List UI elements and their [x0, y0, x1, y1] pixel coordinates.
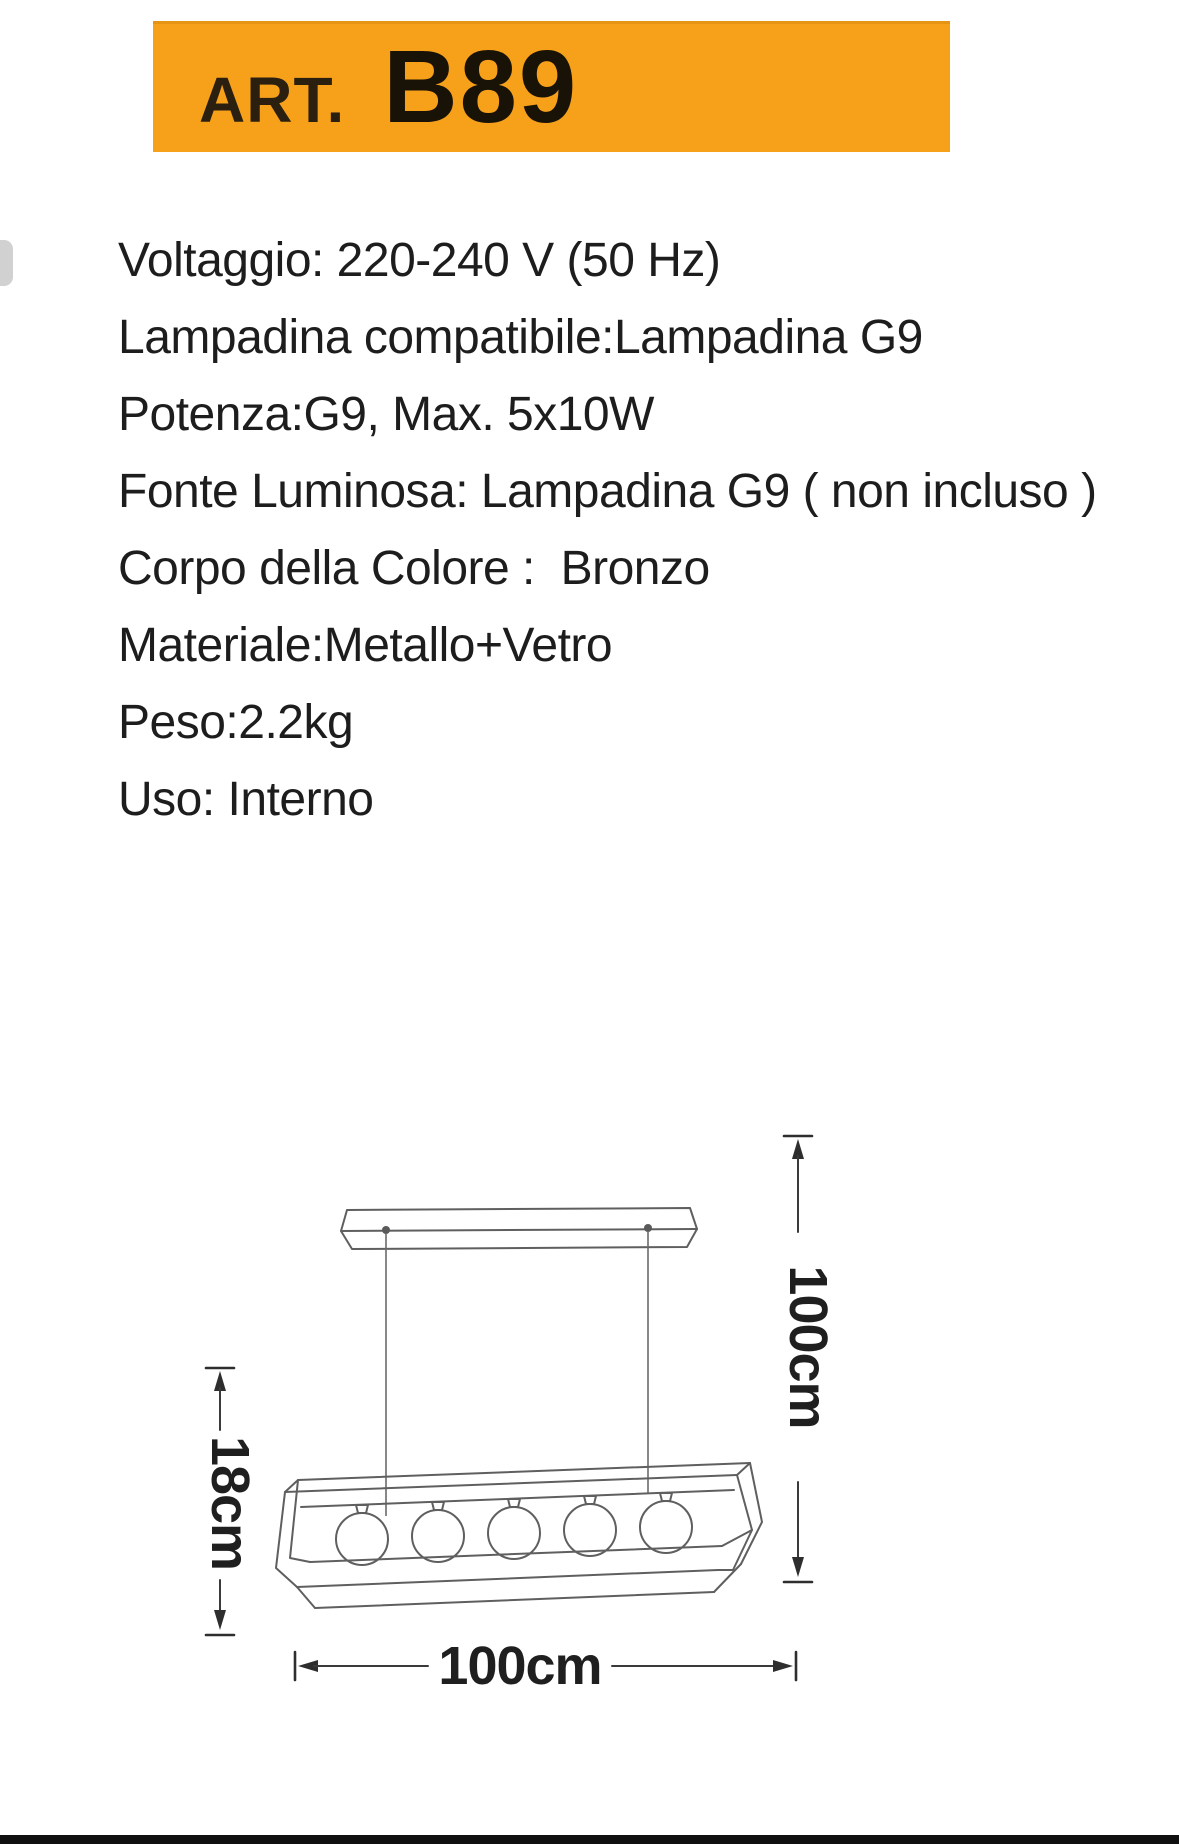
canopy-mount-left: [382, 1226, 390, 1234]
bulb-socket: [584, 1496, 596, 1504]
dimension-total-height: 100cm: [778, 1136, 838, 1582]
total-height-label: 100cm: [778, 1265, 838, 1428]
bulb-globe: [640, 1501, 692, 1553]
dimension-fixture-height: 18cm: [200, 1368, 260, 1635]
bulb-socket: [660, 1493, 672, 1501]
bulb-socket: [432, 1502, 444, 1510]
dimension-width: 100cm: [295, 1636, 796, 1696]
bulb-socket: [508, 1499, 520, 1507]
lamp-cage-frame: [276, 1463, 762, 1608]
bulb-globe: [412, 1510, 464, 1562]
bulb-socket: [356, 1505, 368, 1513]
ceiling-canopy: [341, 1208, 697, 1249]
fixture-height-label: 18cm: [200, 1436, 260, 1570]
suspension-wires: [386, 1232, 648, 1516]
width-label: 100cm: [438, 1636, 601, 1696]
bulb-globe: [564, 1504, 616, 1556]
spec-sheet-page: ART. B89 Voltaggio: 220-240 V (50 Hz) La…: [0, 0, 1179, 1844]
bulb-globe: [336, 1513, 388, 1565]
bottom-edge-bar: [0, 1835, 1179, 1844]
bulb-globe: [488, 1507, 540, 1559]
canopy-mount-right: [644, 1224, 652, 1232]
dimension-drawing: 100cm 18cm 100cm: [0, 0, 1179, 1844]
